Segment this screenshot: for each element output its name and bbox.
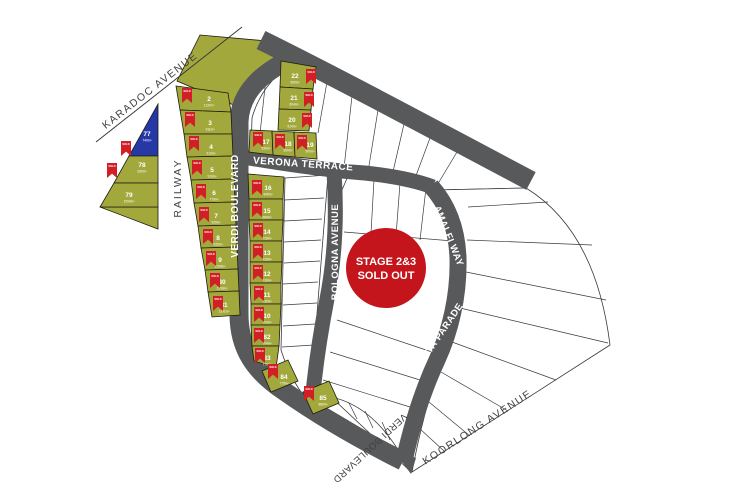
lot-number: 10 bbox=[263, 313, 271, 320]
lot-number: 3 bbox=[208, 120, 212, 127]
lot-size: 910m² bbox=[206, 152, 215, 156]
lot-number: 77 bbox=[143, 131, 151, 138]
sold-flag-label: SOLD bbox=[253, 181, 260, 185]
sold-flag-label: SOLD bbox=[256, 349, 263, 353]
railway-triangle-sliver bbox=[100, 207, 158, 229]
lot-size: 1291m² bbox=[219, 310, 230, 314]
lot-number: 85 bbox=[319, 395, 327, 402]
lot-size: 630m² bbox=[137, 170, 146, 174]
lot-size: 536m² bbox=[261, 147, 270, 151]
estate-map: 21137m²SOLD3911m²SOLD4910m²SOLD5910m²SOL… bbox=[0, 0, 750, 500]
lot-number: 79 bbox=[125, 192, 133, 199]
sold-flag-label: SOLD bbox=[204, 230, 211, 234]
lot-number: 20 bbox=[288, 117, 296, 124]
lot-number: 18 bbox=[284, 141, 292, 148]
sold-flag-label: SOLD bbox=[254, 224, 261, 228]
lot-number: 5 bbox=[210, 167, 214, 174]
lot-size: 814m² bbox=[287, 125, 296, 129]
sold-flag-label: SOLD bbox=[276, 135, 283, 139]
estate-map-page: 21137m²SOLD3911m²SOLD4910m²SOLD5910m²SOL… bbox=[0, 0, 750, 500]
lot-size: 779m² bbox=[209, 198, 218, 202]
sold-flag-label: SOLD bbox=[255, 308, 262, 312]
lot-number: 4 bbox=[209, 144, 213, 151]
sold-flag-label: SOLD bbox=[108, 164, 115, 168]
lot-size: 929m² bbox=[211, 221, 220, 225]
sold-flag-label: SOLD bbox=[254, 133, 261, 137]
sold-flag-label: SOLD bbox=[214, 297, 221, 301]
lot-number: 6 bbox=[212, 190, 216, 197]
lot-number: 19 bbox=[306, 142, 314, 149]
lot-number: 82 bbox=[263, 334, 271, 341]
sold-flag-label: SOLD bbox=[211, 274, 218, 278]
sold-flag-label: SOLD bbox=[307, 70, 314, 74]
lot-size: 604m² bbox=[289, 103, 298, 107]
street-label-bologna-avenue: BOLOGNA AVENUE bbox=[330, 204, 341, 300]
lot-number: 14 bbox=[263, 229, 271, 236]
sold-flag-label: SOLD bbox=[269, 365, 276, 369]
sold-flag-label: SOLD bbox=[305, 93, 312, 97]
lot-size: 880m² bbox=[318, 403, 327, 407]
lot-number: 17 bbox=[262, 139, 270, 146]
lot-number: 9 bbox=[218, 257, 222, 264]
lot-number: 22 bbox=[291, 73, 299, 80]
sold-flag-label: SOLD bbox=[253, 203, 260, 207]
lot-number: 78 bbox=[138, 162, 146, 169]
sold-flag-label: SOLD bbox=[303, 114, 310, 118]
lot-number: 8 bbox=[216, 235, 220, 242]
sold-flag-label: SOLD bbox=[254, 245, 261, 249]
lot-size: 728m² bbox=[262, 258, 271, 262]
lot-size: 1290m² bbox=[215, 265, 226, 269]
lot-size: 749m² bbox=[142, 139, 151, 143]
lot-number: 21 bbox=[290, 95, 298, 102]
lot-size: 1137m² bbox=[204, 104, 215, 108]
street-label-railway: RAILWAY bbox=[172, 158, 184, 217]
lot-number: 15 bbox=[263, 208, 271, 215]
lot-size: 911m² bbox=[206, 128, 215, 132]
sold-flag-label: SOLD bbox=[190, 137, 197, 141]
lot-size: 775m² bbox=[279, 382, 288, 386]
lot-77[interactable] bbox=[129, 104, 158, 156]
lot-size: 500m² bbox=[305, 150, 314, 154]
lot-size: 845m² bbox=[263, 193, 272, 197]
sold-flag-label: SOLD bbox=[255, 287, 262, 291]
lot-size: 1050m² bbox=[124, 200, 135, 204]
sold-flag-label: SOLD bbox=[183, 89, 190, 93]
lot-size: 728m² bbox=[262, 237, 271, 241]
lot-number: 13 bbox=[263, 250, 271, 257]
lot-size: 1290m² bbox=[217, 287, 228, 291]
lot-size: 730m² bbox=[262, 279, 271, 283]
sold-flag-label: SOLD bbox=[200, 208, 207, 212]
lot-number: 16 bbox=[264, 185, 272, 192]
lot-number: 12 bbox=[263, 271, 271, 278]
lot-number: 84 bbox=[280, 374, 288, 381]
sold-flag-label: SOLD bbox=[298, 136, 305, 140]
sold-out-badge bbox=[346, 228, 426, 308]
lot-number: 2 bbox=[207, 96, 211, 103]
lot-number: 11 bbox=[264, 292, 271, 299]
sold-flag-label: SOLD bbox=[122, 142, 129, 146]
sold-flag-label: SOLD bbox=[255, 329, 262, 333]
sold-flag-label: SOLD bbox=[305, 387, 312, 391]
sold-flag-icon: SOLD bbox=[107, 163, 117, 178]
sold-flag-label: SOLD bbox=[193, 161, 200, 165]
lot-number: 7 bbox=[214, 213, 218, 220]
lot-size: 650m² bbox=[290, 81, 299, 85]
sold-flag-label: SOLD bbox=[197, 185, 204, 189]
sold-out-badge-line2: SOLD OUT bbox=[358, 270, 415, 282]
lot-size: 689m² bbox=[262, 216, 271, 220]
sold-flag-label: SOLD bbox=[207, 252, 214, 256]
lot-size: 910m² bbox=[207, 175, 216, 179]
lot-size: 500m² bbox=[283, 149, 292, 153]
sold-flag-icon: SOLD bbox=[121, 141, 131, 156]
lot-size: 926m² bbox=[213, 243, 222, 247]
sold-flag-label: SOLD bbox=[186, 113, 193, 117]
sold-flag-label: SOLD bbox=[254, 266, 261, 270]
sold-out-badge-line1: STAGE 2&3 bbox=[356, 256, 416, 268]
lot-78[interactable] bbox=[114, 156, 158, 183]
street-label-verdi-boulevard-west: VERDI BOULEVARD bbox=[230, 154, 241, 257]
